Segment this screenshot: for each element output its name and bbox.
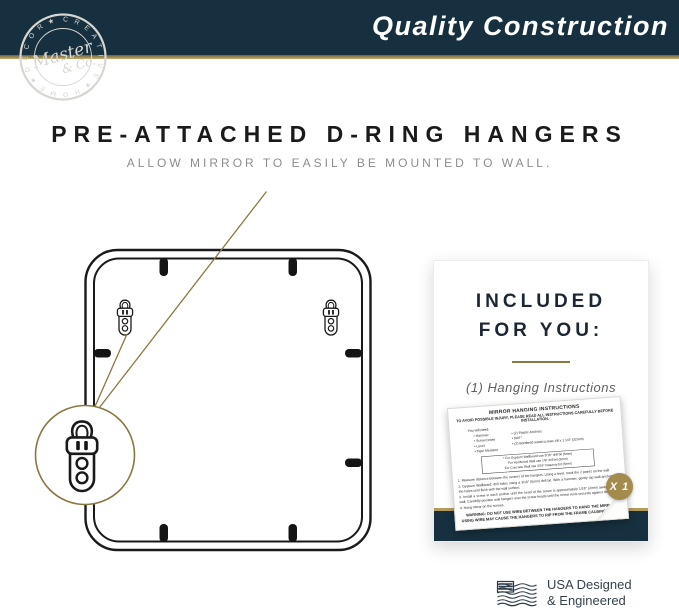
included-item-label: (1) Hanging Instructions [434, 380, 648, 395]
included-card-title-line2: FOR YOU: [479, 320, 604, 341]
included-card-title-line1: INCLUDED [476, 291, 606, 312]
mirror-frame-outline [86, 250, 371, 550]
included-card-title: INCLUDED FOR YOU: [434, 287, 648, 346]
instruction-sheet: MIRROR HANGING INSTRUCTIONS TO AVOID POS… [447, 396, 629, 531]
instruction-sheet-content: MIRROR HANGING INSTRUCTIONS TO AVOID POS… [448, 397, 628, 530]
quantity-badge: X 1 [606, 473, 633, 500]
sheet-tools-right: • (2) Plastic Anchors • Drill * • (2) Bo… [511, 426, 584, 451]
card-gold-divider [512, 361, 570, 363]
d-ring-hanger-left-icon [117, 300, 132, 335]
sheet-tools-left: • Hammer • Screw Driver • Level • Tape M… [473, 432, 498, 454]
d-ring-hanger-right-icon [323, 300, 338, 335]
included-card: INCLUDED FOR YOU: (1) Hanging Instructio… [433, 260, 649, 542]
page-background: Quality Construction C R E A T I V E ★ H… [0, 0, 679, 611]
d-ring-hanger-zoom-icon [67, 421, 97, 491]
tool-item: • Tape Measure [474, 447, 498, 454]
magnifier-circle [36, 406, 135, 505]
